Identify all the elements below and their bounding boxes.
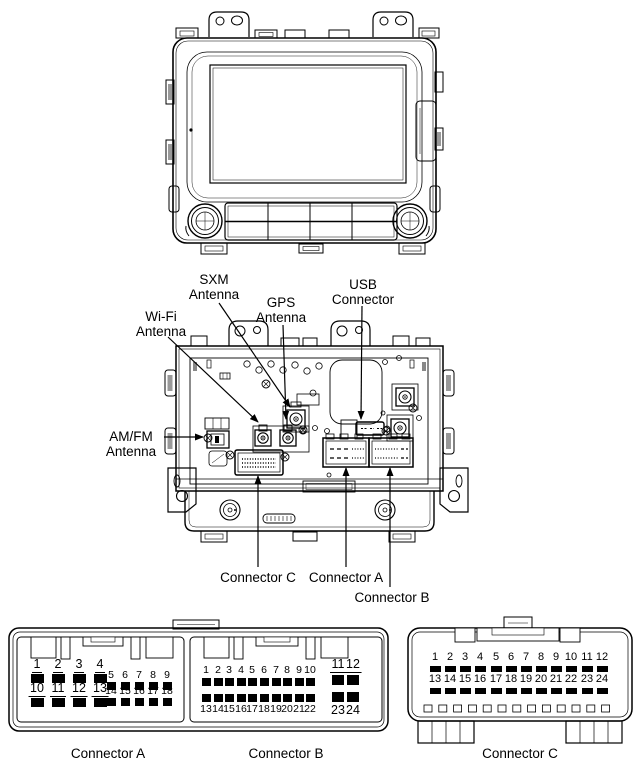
rear-connector-a-label: Connector A <box>309 570 383 585</box>
rear-connector-c-label: Connector C <box>220 570 296 585</box>
pinout-connector-a-label: Connector A <box>71 746 145 761</box>
keying-notches-c <box>455 628 580 642</box>
wifi-arrow <box>168 337 258 422</box>
usb-arrow <box>361 306 362 419</box>
service-manual-diagram: SXMAntenna GPSAntenna USBConnector Wi-Fi… <box>0 0 639 768</box>
connector-c-housing <box>404 616 636 748</box>
keying-notches-b <box>204 637 348 659</box>
rear-connector-b-label: Connector B <box>354 590 429 605</box>
amfm-antenna-label: AM/FMAntenna <box>106 429 156 459</box>
bottom-teeth <box>424 705 610 712</box>
connector-ab-housing <box>6 618 392 742</box>
keying-notches-a <box>31 637 173 659</box>
mounting-feet <box>418 721 622 743</box>
pinout-connector-c-label: Connector C <box>482 746 558 761</box>
usb-connector-label: USBConnector <box>332 277 394 307</box>
sxm-antenna-label: SXMAntenna <box>189 272 239 302</box>
wifi-antenna-label: Wi-FiAntenna <box>136 309 186 339</box>
gps-antenna-label: GPSAntenna <box>256 295 306 325</box>
gps-arrow <box>283 325 286 419</box>
pinout-connector-b-label: Connector B <box>248 746 323 761</box>
